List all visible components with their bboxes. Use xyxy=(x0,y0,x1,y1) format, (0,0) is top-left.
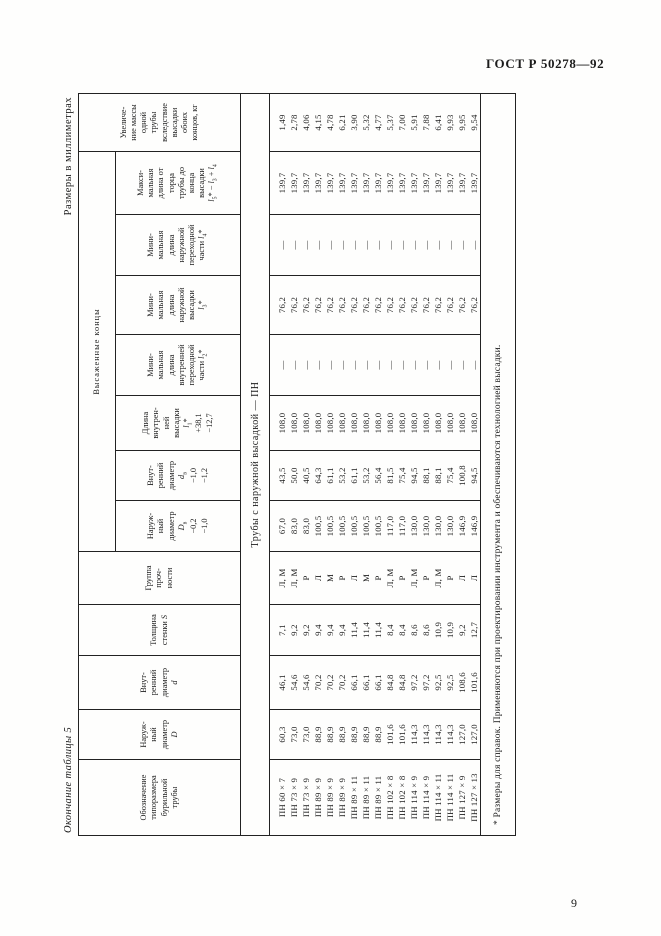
cell-upset_inner_diameter_dv: 88,1 xyxy=(420,451,432,501)
cell-max_length_l5: 139,7 xyxy=(444,151,456,214)
cell-designation: ПН 89 × 11 xyxy=(360,760,372,836)
cell-wall_thickness_S: 10,9 xyxy=(432,605,444,656)
cell-wall_thickness_S: 9,4 xyxy=(312,605,324,656)
cell-strength_group: Л xyxy=(312,552,324,605)
cell-min_outer_upset_l3: 76,2 xyxy=(360,276,372,335)
cell-mass_increase: 4,06 xyxy=(300,93,312,151)
cell-inner_diameter_d: 70,2 xyxy=(312,656,324,710)
cell-strength_group: Л, М xyxy=(408,552,420,605)
cell-max_length_l5: 139,7 xyxy=(270,151,289,214)
cell-max_length_l5: 139,7 xyxy=(372,151,384,214)
cell-inner_upset_length_l1: 108,0 xyxy=(372,396,384,451)
cell-wall_thickness_S: 11,4 xyxy=(348,605,360,656)
cell-min_inner_transition_l2: — xyxy=(432,335,444,396)
table-row: ПН 102 × 8101,684,88,4Л, М117,081,5108,0… xyxy=(384,93,396,835)
cell-wall_thickness_S: 8,6 xyxy=(420,605,432,656)
cell-mass_increase: 2,78 xyxy=(288,93,300,151)
cell-upset_outer_diameter_Dv: 100,5 xyxy=(348,501,360,552)
cell-designation: ПН 114 × 9 xyxy=(420,760,432,836)
cell-min_outer_upset_l3: 76,2 xyxy=(456,276,468,335)
cell-designation: ПН 89 × 9 xyxy=(336,760,348,836)
cell-min_inner_transition_l2: — xyxy=(384,335,396,396)
cell-strength_group: Л, М xyxy=(270,552,289,605)
cell-mass_increase: 9,95 xyxy=(456,93,468,151)
cell-inner_upset_length_l1: 108,0 xyxy=(312,396,324,451)
table-row: ПН 127 × 13127,0101,612,7Л146,994,5108,0… xyxy=(468,93,481,835)
cell-inner_upset_length_l1: 108,0 xyxy=(384,396,396,451)
cell-mass_increase: 9,54 xyxy=(468,93,481,151)
cell-mass_increase: 3,90 xyxy=(348,93,360,151)
cell-inner_diameter_d: 54,6 xyxy=(300,656,312,710)
cell-upset_inner_diameter_dv: 94,5 xyxy=(408,451,420,501)
cell-upset_inner_diameter_dv: 53,2 xyxy=(360,451,372,501)
table-row: ПН 114 × 9114,397,28,6Р130,088,1108,0—76… xyxy=(420,93,432,835)
cell-max_length_l5: 139,7 xyxy=(324,151,336,214)
cell-mass_increase: 6,41 xyxy=(432,93,444,151)
cell-inner_upset_length_l1: 108,0 xyxy=(324,396,336,451)
table-row: ПН 127 × 9127,0108,69,2Л146,9100,8108,0—… xyxy=(456,93,468,835)
header-cell-inner_upset_length_l1: Длинавнутрен-нейвысадкиl1*+38,1−12,7 xyxy=(116,396,241,451)
cell-mass_increase: 4,78 xyxy=(324,93,336,151)
cell-strength_group: Л, М xyxy=(384,552,396,605)
table-row: ПН 89 × 1188,966,111,4М100,553,2108,0—76… xyxy=(360,93,372,835)
cell-mass_increase: 6,21 xyxy=(336,93,348,151)
cell-max_length_l5: 139,7 xyxy=(312,151,324,214)
cell-wall_thickness_S: 8,4 xyxy=(396,605,408,656)
table-row: ПН 102 × 8101,684,88,4Р117,075,4108,0—76… xyxy=(396,93,408,835)
cell-upset_inner_diameter_dv: 53,2 xyxy=(336,451,348,501)
cell-upset_inner_diameter_dv: 56,4 xyxy=(372,451,384,501)
cell-min_outer_upset_l3: 76,2 xyxy=(288,276,300,335)
header-cell-upset_outer_diameter_Dv: Наруж-ныйдиаметрDв−0,2−1,0 xyxy=(116,501,241,552)
cell-wall_thickness_S: 8,4 xyxy=(384,605,396,656)
cell-min_inner_transition_l2: — xyxy=(270,335,289,396)
table-row: ПН 73 × 973,054,69,2Л, М83,050,0108,0—76… xyxy=(288,93,300,835)
cell-min_inner_transition_l2: — xyxy=(408,335,420,396)
cell-designation: ПН 114 × 11 xyxy=(444,760,456,836)
cell-min_inner_transition_l2: — xyxy=(300,335,312,396)
cell-inner_diameter_d: 84,8 xyxy=(396,656,408,710)
cell-min_outer_upset_l3: 76,2 xyxy=(468,276,481,335)
cell-upset_outer_diameter_Dv: 83,0 xyxy=(288,501,300,552)
cell-min_outer_upset_l3: 76,2 xyxy=(324,276,336,335)
cell-designation: ПН 73 × 9 xyxy=(300,760,312,836)
cell-strength_group: Л, М xyxy=(288,552,300,605)
header-cell-inner_diameter_d: Внут-реннийдиаметрd xyxy=(79,656,241,710)
cell-outer_diameter_D: 73,0 xyxy=(288,710,300,760)
cell-max_length_l5: 139,7 xyxy=(300,151,312,214)
cell-max_length_l5: 139,7 xyxy=(348,151,360,214)
cell-outer_diameter_D: 127,0 xyxy=(456,710,468,760)
cell-min_inner_transition_l2: — xyxy=(420,335,432,396)
cell-mass_increase: 7,00 xyxy=(396,93,408,151)
cell-upset_inner_diameter_dv: 75,4 xyxy=(444,451,456,501)
cell-inner_upset_length_l1: 108,0 xyxy=(270,396,289,451)
cell-inner_upset_length_l1: 108,0 xyxy=(456,396,468,451)
table-row: ПН 114 × 11114,392,510,9Р130,075,4108,0—… xyxy=(444,93,456,835)
cell-outer_diameter_D: 73,0 xyxy=(300,710,312,760)
cell-strength_group: Р xyxy=(336,552,348,605)
cell-inner_upset_length_l1: 108,0 xyxy=(396,396,408,451)
cell-min_outer_transition_l4: — xyxy=(408,215,420,276)
cell-min_outer_upset_l3: 76,2 xyxy=(384,276,396,335)
cell-designation: ПН 127 × 9 xyxy=(456,760,468,836)
cell-upset_inner_diameter_dv: 88,1 xyxy=(432,451,444,501)
cell-wall_thickness_S: 9,4 xyxy=(336,605,348,656)
cell-upset_outer_diameter_Dv: 100,5 xyxy=(312,501,324,552)
cell-max_length_l5: 139,7 xyxy=(456,151,468,214)
cell-upset_outer_diameter_Dv: 117,0 xyxy=(396,501,408,552)
cell-inner_diameter_d: 84,8 xyxy=(384,656,396,710)
table-row: ПН 73 × 973,054,69,2Р83,040,5108,0—76,2—… xyxy=(300,93,312,835)
header-cell-designation: Обозначениетипоразмерабурильнойтрубы xyxy=(79,760,241,836)
cell-upset_inner_diameter_dv: 75,4 xyxy=(396,451,408,501)
table-row: ПН 89 × 988,970,29,4М100,561,1108,0—76,2… xyxy=(324,93,336,835)
cell-designation: ПН 102 × 8 xyxy=(396,760,408,836)
header-cell-min_outer_upset_l3: Мини-мальнаядлинанаружнойвысадкиl3* xyxy=(116,276,241,335)
cell-inner_diameter_d: 66,1 xyxy=(372,656,384,710)
cell-min_outer_transition_l4: — xyxy=(336,215,348,276)
cell-min_inner_transition_l2: — xyxy=(348,335,360,396)
cell-outer_diameter_D: 60,3 xyxy=(270,710,289,760)
cell-strength_group: Л, М xyxy=(432,552,444,605)
cell-max_length_l5: 139,7 xyxy=(288,151,300,214)
cell-min_outer_transition_l4: — xyxy=(372,215,384,276)
cell-inner_upset_length_l1: 108,0 xyxy=(408,396,420,451)
cell-wall_thickness_S: 9,2 xyxy=(300,605,312,656)
cell-wall_thickness_S: 9,2 xyxy=(288,605,300,656)
cell-outer_diameter_D: 114,3 xyxy=(420,710,432,760)
cell-upset_inner_diameter_dv: 61,1 xyxy=(348,451,360,501)
rotated-table-block: Окончание таблицы 5 Размеры в миллиметра… xyxy=(48,94,518,836)
header-cell-min_outer_transition_l4: Мини-мальнаядлинанаружнойпереходнойчасти… xyxy=(116,215,241,276)
table-caption-row: Окончание таблицы 5 Размеры в миллиметра… xyxy=(48,94,78,836)
cell-upset_inner_diameter_dv: 50,0 xyxy=(288,451,300,501)
cell-min_outer_transition_l4: — xyxy=(468,215,481,276)
cell-strength_group: М xyxy=(360,552,372,605)
cell-mass_increase: 5,32 xyxy=(360,93,372,151)
cell-outer_diameter_D: 127,0 xyxy=(468,710,481,760)
cell-strength_group: Л xyxy=(468,552,481,605)
cell-inner_upset_length_l1: 108,0 xyxy=(288,396,300,451)
cell-max_length_l5: 139,7 xyxy=(432,151,444,214)
header-cell-outer_diameter_D: Наруж-ныйдиаметрD xyxy=(79,710,241,760)
cell-upset_outer_diameter_Dv: 130,0 xyxy=(432,501,444,552)
cell-outer_diameter_D: 101,6 xyxy=(396,710,408,760)
cell-max_length_l5: 139,7 xyxy=(408,151,420,214)
table-row: ПН 114 × 11114,392,510,9Л, М130,088,1108… xyxy=(432,93,444,835)
table-row: ПН 114 × 9114,397,28,6Л, М130,094,5108,0… xyxy=(408,93,420,835)
cell-outer_diameter_D: 88,9 xyxy=(324,710,336,760)
cell-strength_group: Р xyxy=(444,552,456,605)
page-number: 9 xyxy=(571,896,577,911)
table-row: ПН 60 × 760,346,17,1Л, М67,043,5108,0—76… xyxy=(270,93,289,835)
cell-upset_outer_diameter_Dv: 67,0 xyxy=(270,501,289,552)
cell-min_outer_upset_l3: 76,2 xyxy=(420,276,432,335)
cell-outer_diameter_D: 114,3 xyxy=(408,710,420,760)
cell-min_outer_transition_l4: — xyxy=(396,215,408,276)
cell-strength_group: Р xyxy=(420,552,432,605)
cell-max_length_l5: 139,7 xyxy=(420,151,432,214)
cell-min_inner_transition_l2: — xyxy=(468,335,481,396)
cell-mass_increase: 9,93 xyxy=(444,93,456,151)
cell-designation: ПН 127 × 13 xyxy=(468,760,481,836)
standard-code-header: ГОСТ Р 50278—92 xyxy=(486,56,604,72)
cell-upset_outer_diameter_Dv: 83,0 xyxy=(300,501,312,552)
cell-mass_increase: 7,88 xyxy=(420,93,432,151)
main-table: ОбозначениетипоразмерабурильнойтрубыНару… xyxy=(78,93,516,836)
cell-min_outer_upset_l3: 76,2 xyxy=(348,276,360,335)
cell-inner_upset_length_l1: 108,0 xyxy=(360,396,372,451)
cell-inner_diameter_d: 92,5 xyxy=(432,656,444,710)
header-cell-mass_increase: Увеличе-ние массыоднойтрубывследствиевыс… xyxy=(79,93,241,151)
cell-designation: ПН 89 × 11 xyxy=(372,760,384,836)
cell-min_outer_upset_l3: 76,2 xyxy=(270,276,289,335)
cell-inner_diameter_d: 97,2 xyxy=(420,656,432,710)
cell-outer_diameter_D: 88,9 xyxy=(348,710,360,760)
cell-upset_inner_diameter_dv: 64,3 xyxy=(312,451,324,501)
cell-max_length_l5: 139,7 xyxy=(336,151,348,214)
cell-inner_diameter_d: 70,2 xyxy=(324,656,336,710)
cell-designation: ПН 89 × 9 xyxy=(312,760,324,836)
cell-outer_diameter_D: 88,9 xyxy=(312,710,324,760)
cell-inner_diameter_d: 97,2 xyxy=(408,656,420,710)
cell-min_inner_transition_l2: — xyxy=(288,335,300,396)
cell-strength_group: Л xyxy=(456,552,468,605)
cell-wall_thickness_S: 10,9 xyxy=(444,605,456,656)
cell-strength_group: Р xyxy=(396,552,408,605)
cell-outer_diameter_D: 101,6 xyxy=(384,710,396,760)
cell-max_length_l5: 139,7 xyxy=(468,151,481,214)
cell-upset_outer_diameter_Dv: 100,5 xyxy=(336,501,348,552)
cell-outer_diameter_D: 88,9 xyxy=(336,710,348,760)
document-page: ГОСТ Р 50278—92 Окончание таблицы 5 Разм… xyxy=(0,0,661,936)
cell-wall_thickness_S: 7,1 xyxy=(270,605,289,656)
header-cell-upset_inner_diameter_dv: Внут-реннийдиаметрdв−1,0−1,2 xyxy=(116,451,241,501)
cell-min_outer_transition_l4: — xyxy=(456,215,468,276)
cell-inner_diameter_d: 101,6 xyxy=(468,656,481,710)
footnote-row: * Размеры для справок. Применяются при п… xyxy=(481,93,516,835)
cell-min_outer_upset_l3: 76,2 xyxy=(444,276,456,335)
units-caption: Размеры в миллиметрах xyxy=(63,97,74,215)
cell-min_outer_upset_l3: 76,2 xyxy=(396,276,408,335)
cell-min_outer_upset_l3: 76,2 xyxy=(432,276,444,335)
cell-outer_diameter_D: 88,9 xyxy=(360,710,372,760)
cell-min_inner_transition_l2: — xyxy=(444,335,456,396)
cell-designation: ПН 102 × 8 xyxy=(384,760,396,836)
cell-wall_thickness_S: 9,4 xyxy=(324,605,336,656)
cell-outer_diameter_D: 88,9 xyxy=(372,710,384,760)
cell-upset_outer_diameter_Dv: 100,5 xyxy=(324,501,336,552)
cell-inner_diameter_d: 92,5 xyxy=(444,656,456,710)
cell-mass_increase: 1,49 xyxy=(270,93,289,151)
cell-min_outer_transition_l4: — xyxy=(324,215,336,276)
cell-outer_diameter_D: 114,3 xyxy=(432,710,444,760)
cell-min_inner_transition_l2: — xyxy=(372,335,384,396)
cell-mass_increase: 5,37 xyxy=(384,93,396,151)
header-row-1: ОбозначениетипоразмерабурильнойтрубыНару… xyxy=(79,93,116,835)
cell-inner_upset_length_l1: 108,0 xyxy=(336,396,348,451)
cell-min_outer_transition_l4: — xyxy=(312,215,324,276)
cell-max_length_l5: 139,7 xyxy=(360,151,372,214)
cell-designation: ПН 89 × 9 xyxy=(324,760,336,836)
cell-wall_thickness_S: 11,4 xyxy=(360,605,372,656)
cell-min_inner_transition_l2: — xyxy=(396,335,408,396)
cell-inner_diameter_d: 54,6 xyxy=(288,656,300,710)
cell-min_outer_upset_l3: 76,2 xyxy=(336,276,348,335)
cell-min_outer_upset_l3: 76,2 xyxy=(408,276,420,335)
cell-inner_upset_length_l1: 108,0 xyxy=(348,396,360,451)
header-cell-wall_thickness_S: Толщинастенки S xyxy=(79,605,241,656)
cell-designation: ПН 60 × 7 xyxy=(270,760,289,836)
section-row: Трубы с наружной высадкой — ПН xyxy=(241,93,270,835)
table-row: ПН 89 × 1188,966,111,4Р100,556,4108,0—76… xyxy=(372,93,384,835)
cell-min_inner_transition_l2: — xyxy=(336,335,348,396)
cell-min_inner_transition_l2: — xyxy=(360,335,372,396)
header-cell-strength_group: Группапроч-ности xyxy=(79,552,241,605)
cell-upset_inner_diameter_dv: 61,1 xyxy=(324,451,336,501)
cell-strength_group: Р xyxy=(300,552,312,605)
cell-min_outer_transition_l4: — xyxy=(384,215,396,276)
cell-max_length_l5: 139,7 xyxy=(384,151,396,214)
cell-outer_diameter_D: 114,3 xyxy=(444,710,456,760)
cell-min_inner_transition_l2: — xyxy=(312,335,324,396)
cell-wall_thickness_S: 12,7 xyxy=(468,605,481,656)
cell-upset_inner_diameter_dv: 100,8 xyxy=(456,451,468,501)
cell-inner_upset_length_l1: 108,0 xyxy=(300,396,312,451)
cell-inner_upset_length_l1: 108,0 xyxy=(444,396,456,451)
cell-min_outer_transition_l4: — xyxy=(300,215,312,276)
cell-upset_inner_diameter_dv: 81,5 xyxy=(384,451,396,501)
cell-inner_diameter_d: 70,2 xyxy=(336,656,348,710)
cell-wall_thickness_S: 11,4 xyxy=(372,605,384,656)
cell-upset_outer_diameter_Dv: 146,9 xyxy=(456,501,468,552)
cell-strength_group: М xyxy=(324,552,336,605)
cell-strength_group: Р xyxy=(372,552,384,605)
table-row: ПН 89 × 988,970,29,4Л100,564,3108,0—76,2… xyxy=(312,93,324,835)
cell-wall_thickness_S: 9,2 xyxy=(456,605,468,656)
cell-upset_outer_diameter_Dv: 100,5 xyxy=(360,501,372,552)
cell-min_outer_upset_l3: 76,2 xyxy=(372,276,384,335)
cell-designation: ПН 114 × 9 xyxy=(408,760,420,836)
cell-min_outer_upset_l3: 76,2 xyxy=(300,276,312,335)
header-cell-min_inner_transition_l2: Мини-мальнаядлинавнутреннейпереходнойчас… xyxy=(116,335,241,396)
cell-inner_upset_length_l1: 108,0 xyxy=(432,396,444,451)
cell-designation: ПН 89 × 11 xyxy=(348,760,360,836)
cell-mass_increase: 4,15 xyxy=(312,93,324,151)
cell-max_length_l5: 139,7 xyxy=(396,151,408,214)
cell-upset_inner_diameter_dv: 94,5 xyxy=(468,451,481,501)
cell-upset_inner_diameter_dv: 40,5 xyxy=(300,451,312,501)
cell-mass_increase: 4,77 xyxy=(372,93,384,151)
cell-upset_outer_diameter_Dv: 117,0 xyxy=(384,501,396,552)
cell-inner_diameter_d: 46,1 xyxy=(270,656,289,710)
cell-min_outer_transition_l4: — xyxy=(270,215,289,276)
section-row-label: Трубы с наружной высадкой — ПН xyxy=(241,93,270,835)
cell-inner_upset_length_l1: 108,0 xyxy=(468,396,481,451)
table-row: ПН 89 × 1188,966,111,4Л100,561,1108,0—76… xyxy=(348,93,360,835)
cell-upset_inner_diameter_dv: 43,5 xyxy=(270,451,289,501)
cell-designation: ПН 73 × 9 xyxy=(288,760,300,836)
cell-inner_diameter_d: 66,1 xyxy=(348,656,360,710)
footnote-text: * Размеры для справок. Применяются при п… xyxy=(481,93,516,835)
cell-upset_outer_diameter_Dv: 146,9 xyxy=(468,501,481,552)
cell-mass_increase: 5,91 xyxy=(408,93,420,151)
cell-min_outer_transition_l4: — xyxy=(288,215,300,276)
cell-min_outer_transition_l4: — xyxy=(348,215,360,276)
cell-designation: ПН 114 × 11 xyxy=(432,760,444,836)
table-continuation-caption: Окончание таблицы 5 xyxy=(63,727,74,833)
cell-min_outer_upset_l3: 76,2 xyxy=(312,276,324,335)
cell-upset_outer_diameter_Dv: 130,0 xyxy=(420,501,432,552)
cell-inner_diameter_d: 66,1 xyxy=(360,656,372,710)
cell-wall_thickness_S: 8,6 xyxy=(408,605,420,656)
cell-min_outer_transition_l4: — xyxy=(432,215,444,276)
cell-min_outer_transition_l4: — xyxy=(444,215,456,276)
cell-inner_upset_length_l1: 108,0 xyxy=(420,396,432,451)
cell-min_outer_transition_l4: — xyxy=(360,215,372,276)
group-header-upset-ends: Высаженные концы xyxy=(79,151,116,551)
cell-min_outer_transition_l4: — xyxy=(420,215,432,276)
cell-min_inner_transition_l2: — xyxy=(324,335,336,396)
cell-min_inner_transition_l2: — xyxy=(456,335,468,396)
cell-strength_group: Л xyxy=(348,552,360,605)
cell-inner_diameter_d: 108,6 xyxy=(456,656,468,710)
header-cell-max_length_l5: Макси-мальнаядлина отторцатрубы доконцав… xyxy=(116,151,241,214)
table-row: ПН 89 × 988,970,29,4Р100,553,2108,0—76,2… xyxy=(336,93,348,835)
cell-upset_outer_diameter_Dv: 100,5 xyxy=(372,501,384,552)
cell-upset_outer_diameter_Dv: 130,0 xyxy=(444,501,456,552)
cell-upset_outer_diameter_Dv: 130,0 xyxy=(408,501,420,552)
